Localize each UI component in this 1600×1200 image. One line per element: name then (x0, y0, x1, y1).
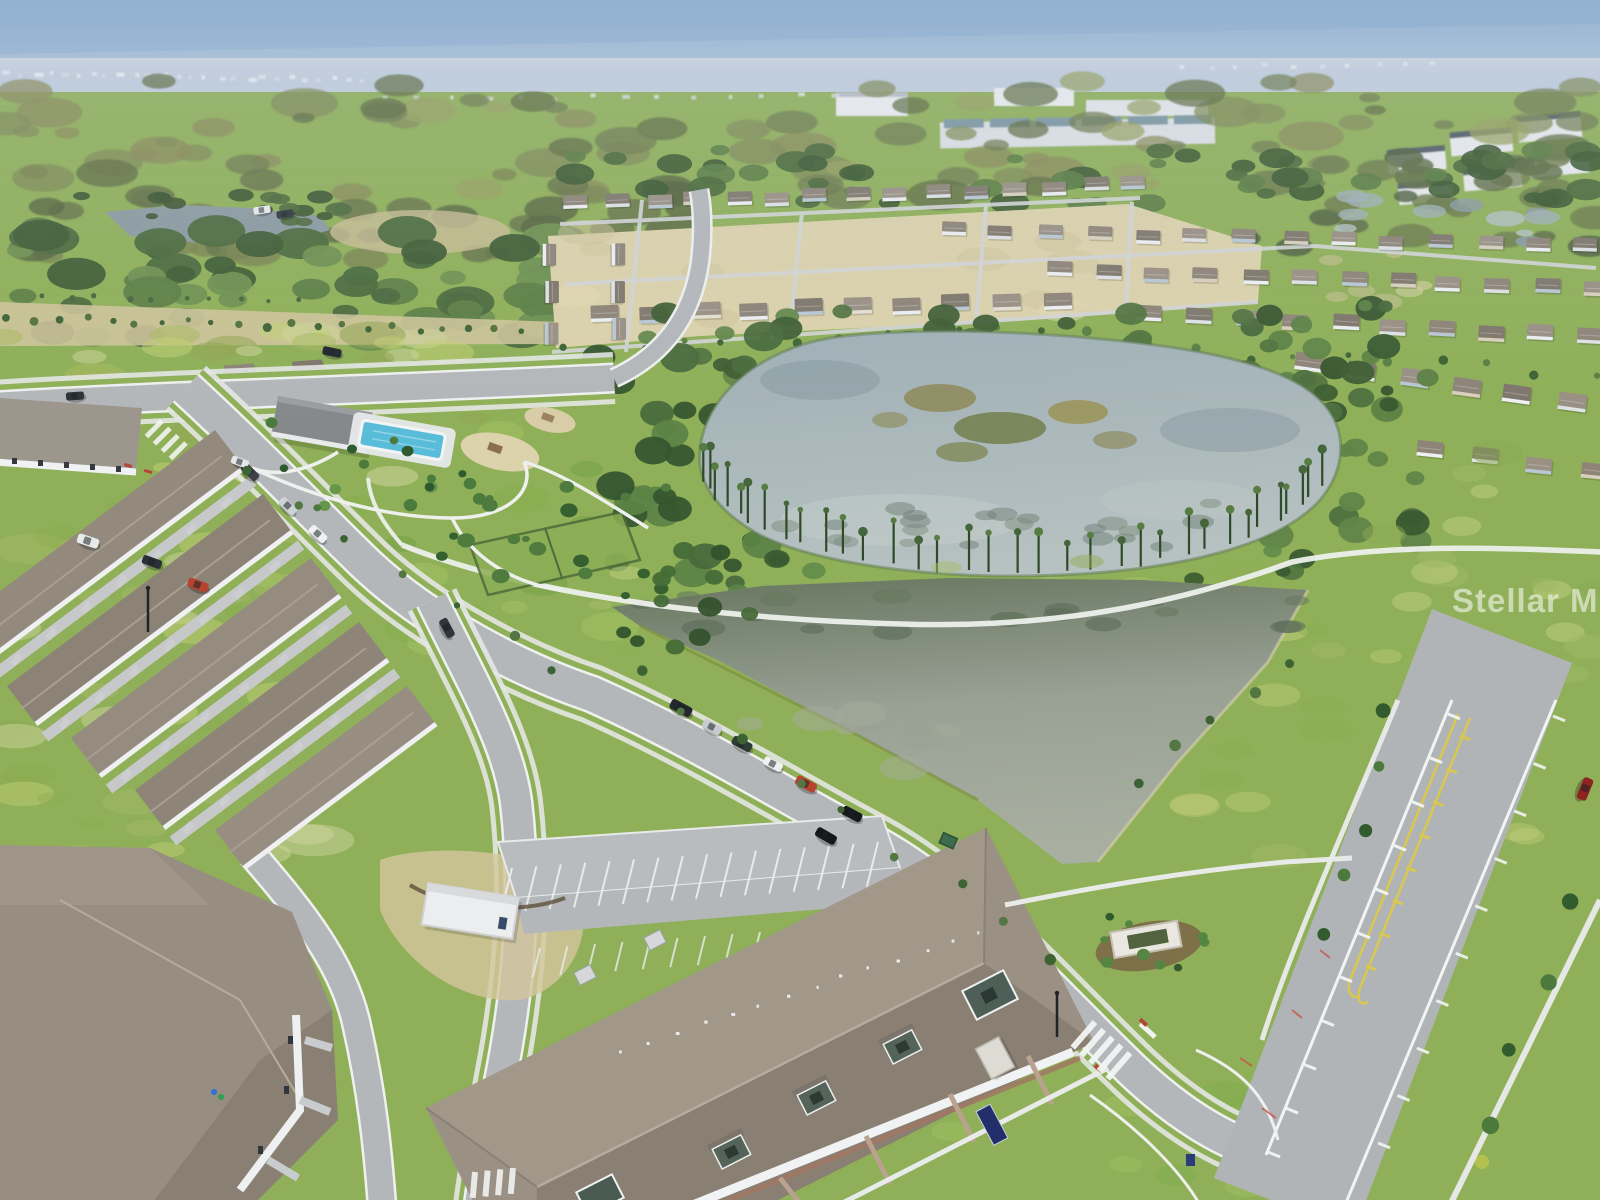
aerial-photo: Stellar MLS (0, 0, 1600, 1200)
watermark: Stellar MLS (1452, 582, 1600, 619)
aerial-scene: Stellar MLS (0, 0, 1600, 1200)
atmospheric-haze (0, 0, 1600, 1200)
